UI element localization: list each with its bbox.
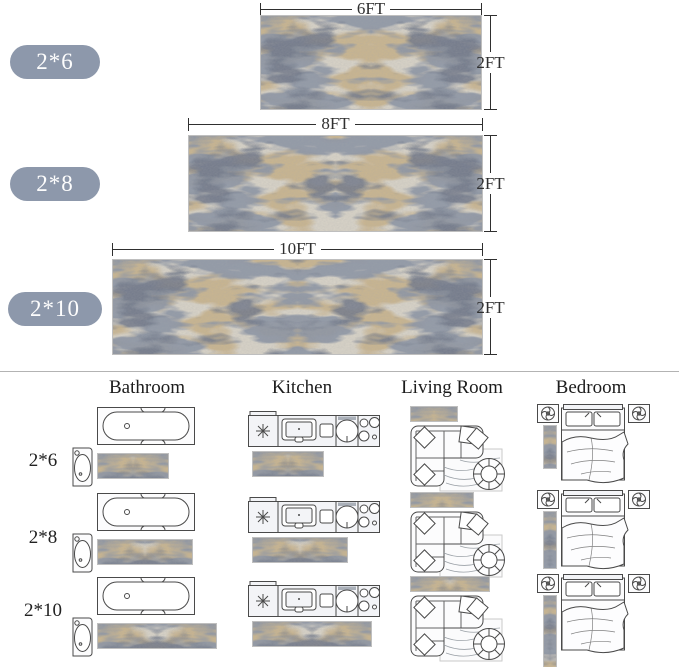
round-chair-icon [474,629,505,660]
width-label: 2FT [476,173,504,194]
dimension-line [390,9,481,10]
bed-icon [561,490,625,567]
bathtub-icon [97,493,195,531]
pedestal-sink-icon [71,617,93,657]
length-label: 10FT [274,240,321,258]
row-size-label: 2*8 [13,527,73,549]
row-size-label: 2*10 [13,600,73,622]
rug-swatch [97,453,169,479]
rug-swatch [97,623,217,649]
rug-swatch [252,451,324,477]
size-badge-2x10: 2*10 [8,292,102,326]
rug-swatch [252,621,372,647]
dimension-line [490,260,491,297]
bathtub-icon [97,577,195,615]
width-label: 2FT [476,52,504,73]
rug-swatch [252,537,348,563]
rug-swatch [543,511,557,569]
dimension-tick [484,231,497,232]
kitchen-counter-icon [248,581,380,617]
rug-image-2x10 [112,259,483,355]
dimension-tick [482,243,483,256]
dimension-line [261,9,352,10]
rug-swatch [410,492,474,508]
dimension-tick [484,354,497,355]
dimension-line [490,73,491,109]
nightstand-icon [537,404,559,423]
round-chair-icon [474,545,505,576]
dimension-tick [484,109,497,110]
rug-swatch [543,595,557,667]
dimension-line [355,124,482,125]
length-label: 8FT [316,115,354,133]
rug-swatch [410,406,458,422]
size-badge-2x8: 2*8 [10,167,100,201]
rug-swatch [410,576,490,592]
bed-icon [561,404,625,481]
length-dimension-2x10: 10FT [112,240,483,258]
nightstand-icon [537,490,559,509]
pedestal-sink-icon [71,447,93,487]
column-header-bedroom: Bedroom [556,377,627,399]
bathtub-icon [97,407,195,445]
kitchen-counter-icon [248,411,380,447]
dimension-line [490,136,491,173]
nightstand-icon [628,574,650,593]
dimension-tick [482,118,483,131]
round-chair-icon [474,459,505,490]
size-badge-2x6: 2*6 [10,45,100,79]
bed-icon [561,574,625,651]
width-dimension-2x10: 2FT [484,259,497,355]
column-header-kitchen: Kitchen [272,377,332,399]
dimension-line [189,124,316,125]
dimension-line [490,318,491,355]
kitchen-counter-icon [248,497,380,533]
dimension-line [113,249,274,250]
section-divider [0,371,679,372]
rug-image-2x8 [188,135,483,232]
nightstand-icon [628,404,650,423]
length-dimension-2x8: 8FT [188,115,483,133]
row-size-label: 2*6 [13,450,73,472]
width-label: 2FT [476,297,504,318]
width-dimension-2x6: 2FT [484,15,497,110]
dimension-line [321,249,482,250]
dimension-line [490,194,491,231]
living-room-furniture-icon [404,593,506,663]
rug-swatch [97,539,193,565]
rug-size-guide-image: 6FT 2FT 2*6 8FT [0,0,679,667]
dimension-tick [481,3,482,16]
living-room-furniture-icon [404,509,506,579]
rug-image-2x6 [260,15,482,110]
nightstand-icon [628,490,650,509]
width-dimension-2x8: 2FT [484,135,497,232]
column-header-living-room: Living Room [401,377,503,399]
rug-swatch [543,425,557,469]
living-room-furniture-icon [404,423,506,493]
nightstand-icon [537,574,559,593]
column-header-bathroom: Bathroom [109,377,185,399]
dimension-line [490,16,491,52]
pedestal-sink-icon [71,533,93,573]
